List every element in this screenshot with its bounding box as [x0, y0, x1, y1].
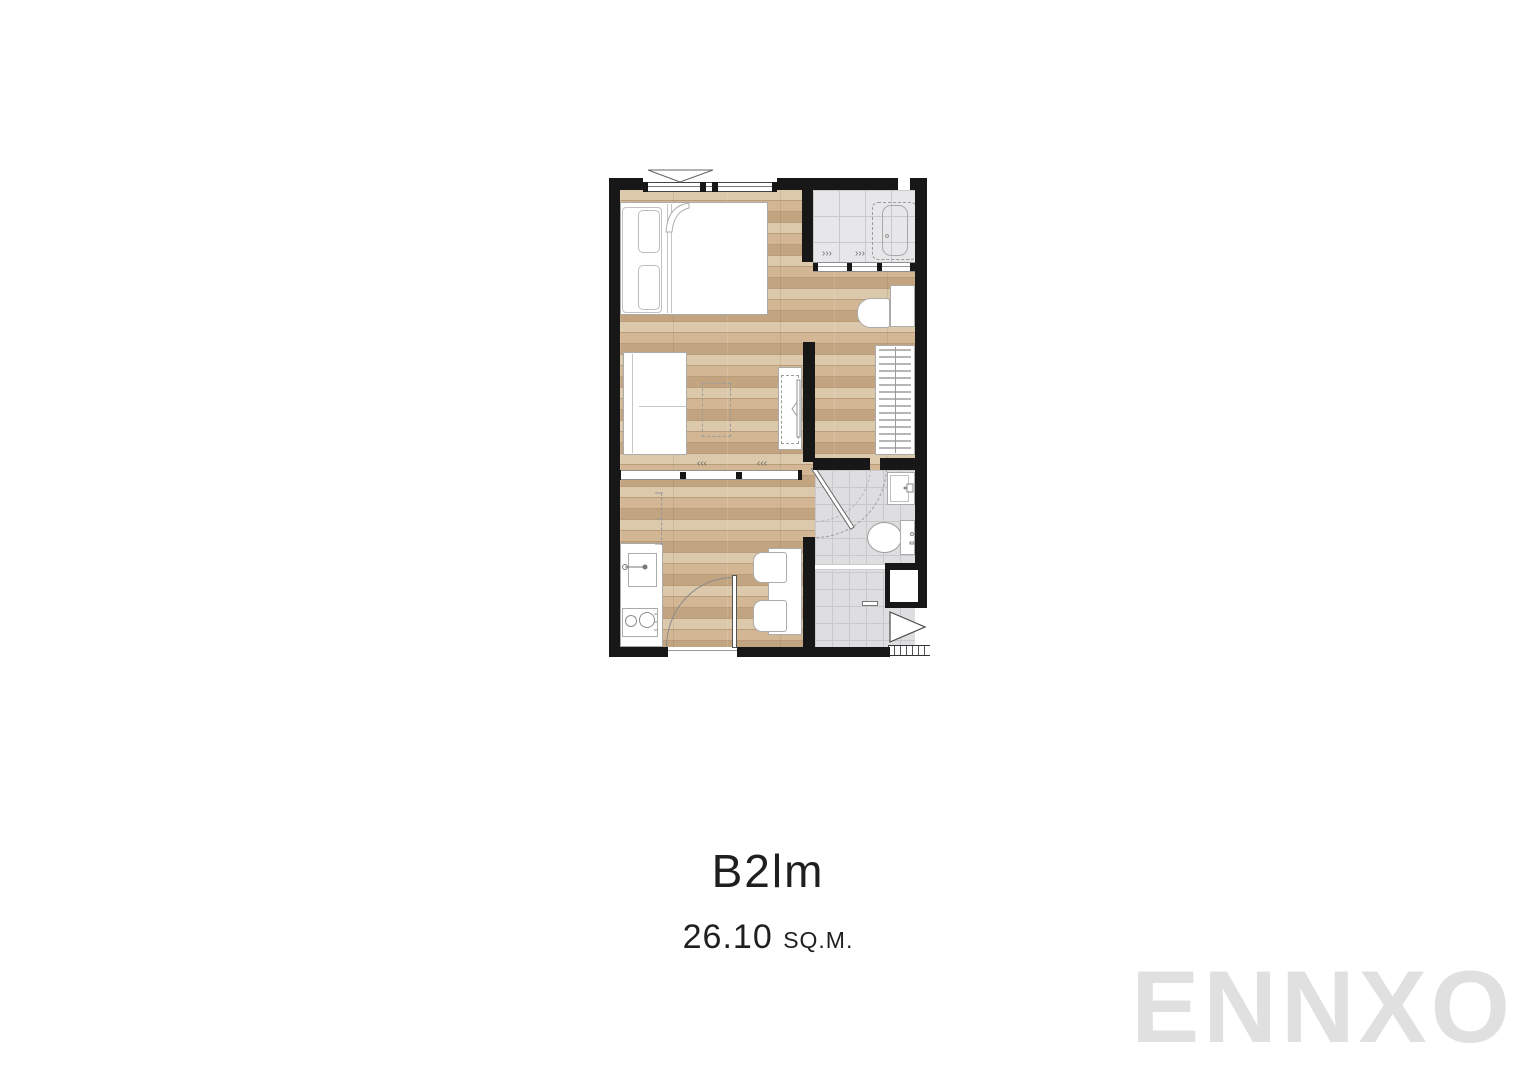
pillow	[638, 265, 660, 310]
wall-right	[915, 190, 927, 563]
unit-name: B2lm	[0, 848, 1536, 894]
entry-threshold-line	[668, 650, 737, 651]
vent-sill	[888, 645, 930, 656]
tv-outline	[781, 375, 799, 444]
partition-stop	[680, 472, 686, 479]
slide-direction-icon: ›››	[855, 249, 865, 259]
dining-chair	[753, 552, 787, 583]
wash-basin-bowl	[890, 475, 909, 502]
blanket-edge	[667, 204, 672, 313]
desk-chair	[857, 298, 890, 328]
area-unit-label: SQ.M.	[783, 927, 853, 953]
sofa-seat-line	[639, 406, 686, 407]
wall-bottom	[609, 647, 668, 657]
window-mullion	[643, 182, 648, 192]
area-value: 26.10	[683, 918, 773, 956]
burner	[639, 612, 655, 628]
wall-left	[609, 178, 620, 657]
wall-balcony-divider	[802, 178, 813, 262]
wall-bottom	[737, 647, 890, 657]
door-mullion	[847, 263, 852, 271]
wall-top	[609, 178, 643, 190]
desk	[890, 285, 915, 327]
partition-end-cap	[798, 470, 802, 480]
ac-fan-housing	[882, 205, 908, 256]
sofa-backrest-line	[632, 354, 633, 453]
movable-divider-line	[661, 493, 662, 545]
slide-direction-icon: ‹‹‹	[757, 459, 767, 469]
toilet-bowl	[867, 522, 902, 553]
slide-direction-icon: ‹‹‹	[697, 459, 707, 469]
wall-top	[910, 178, 927, 190]
wall-bathroom-left	[803, 537, 815, 647]
watermark: ENNXO	[1131, 956, 1514, 1058]
wall-top	[777, 178, 898, 190]
balcony-sliding-door	[813, 262, 917, 272]
entry-threshold	[668, 647, 737, 657]
entry-door-leaf	[732, 575, 737, 648]
dining-chair	[753, 600, 787, 632]
door-mullion	[813, 263, 818, 271]
ac-detail	[885, 234, 889, 238]
door-mullion	[877, 263, 882, 271]
sliding-partition	[617, 470, 802, 480]
kitchen-sink	[628, 553, 657, 587]
wall-bathroom-top	[813, 458, 870, 470]
shower-mixer	[862, 601, 878, 606]
window-rail	[643, 186, 777, 187]
wall-mid-stub	[803, 342, 815, 462]
shower-divider	[815, 564, 885, 570]
toilet-tank	[900, 520, 915, 555]
wardrobe-rail	[895, 347, 896, 453]
partition-stop	[736, 472, 742, 479]
slide-direction-icon: ›››	[822, 249, 832, 259]
pillow	[638, 210, 660, 253]
wall-bathroom-top	[880, 458, 927, 470]
media-rug	[702, 383, 731, 437]
unit-area: 26.10 SQ.M.	[0, 920, 1536, 954]
burner	[625, 615, 637, 627]
floor-plan: ‹‹‹ ‹‹‹ ››› ›››	[609, 178, 927, 657]
shower-niche	[890, 570, 918, 602]
window-mullion	[700, 182, 706, 192]
window	[643, 182, 777, 192]
window-mullion	[712, 182, 718, 192]
balcony-door-rail	[813, 266, 917, 267]
awning-window-icon	[648, 170, 713, 182]
